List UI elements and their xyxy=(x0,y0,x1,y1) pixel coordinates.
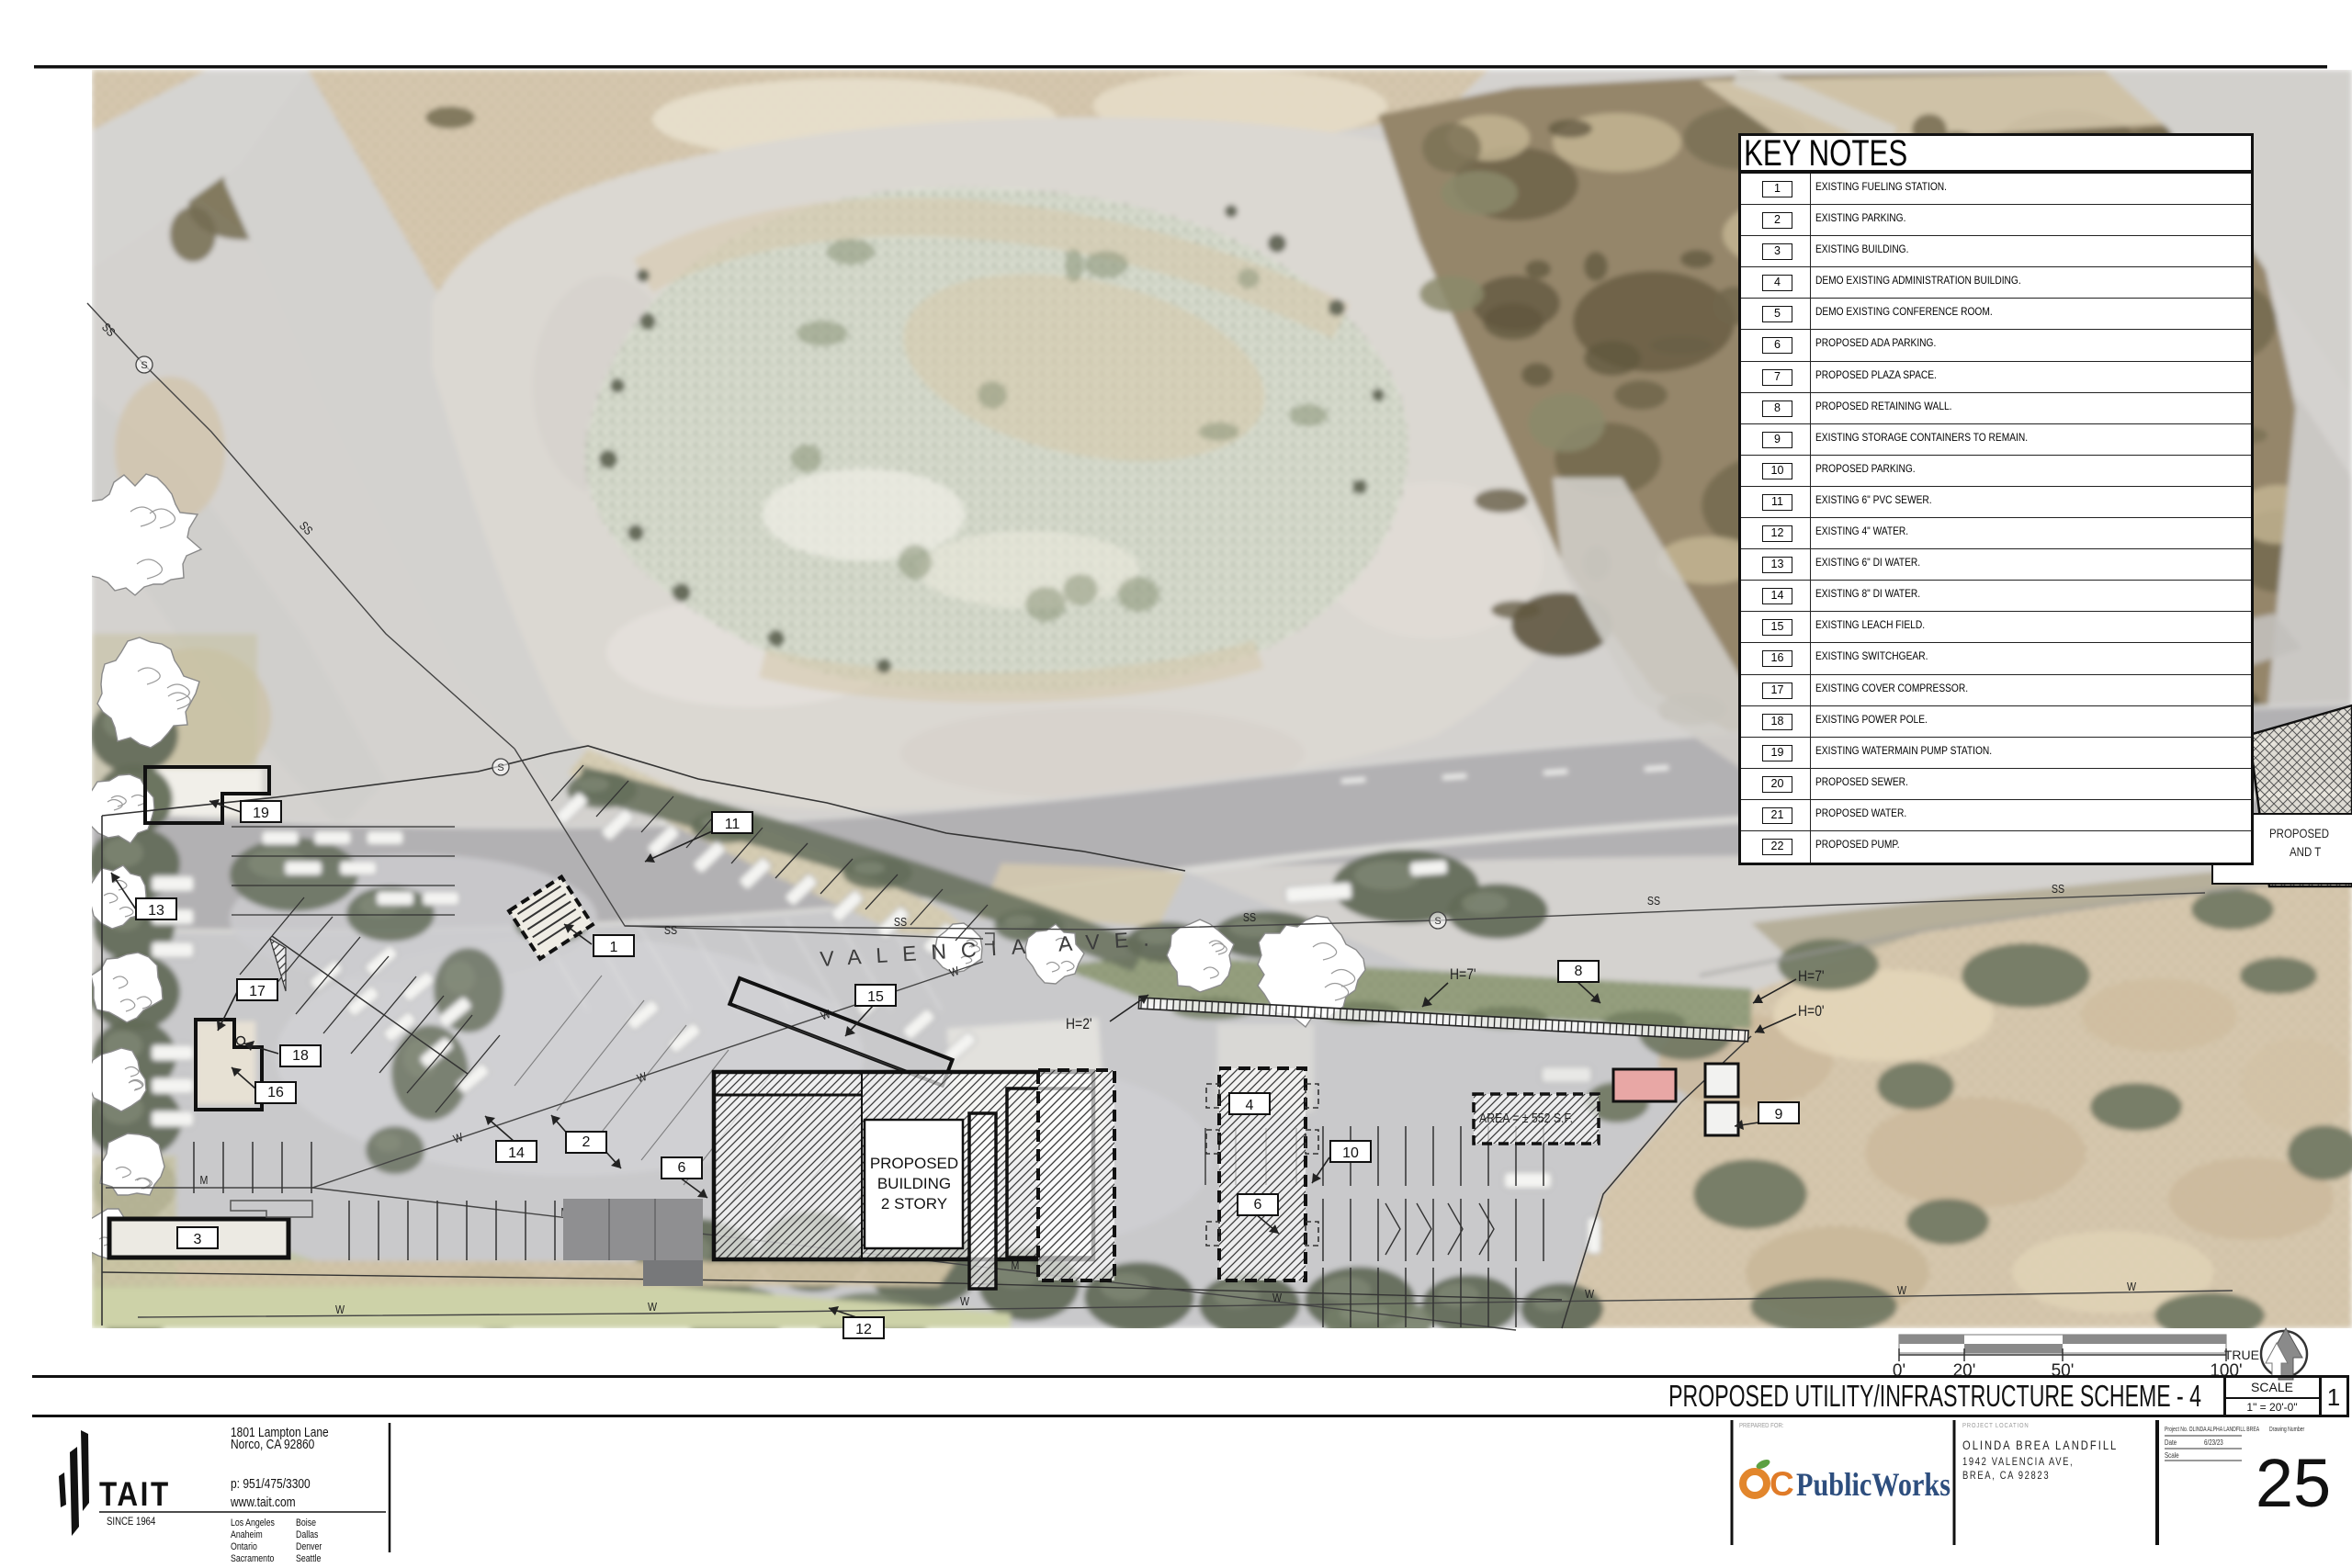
svg-text:S: S xyxy=(1434,916,1441,927)
svg-text:W: W xyxy=(1897,1283,1907,1297)
svg-text:Sacramento: Sacramento xyxy=(231,1553,275,1564)
svg-text:1: 1 xyxy=(2327,1383,2340,1411)
svg-text:Ontario: Ontario xyxy=(231,1541,257,1552)
svg-text:12: 12 xyxy=(855,1322,872,1337)
svg-text:PROPOSEDBUILDING2 STORY: PROPOSEDBUILDING2 STORY xyxy=(870,1155,958,1213)
svg-text:8: 8 xyxy=(1575,964,1583,979)
svg-text:Date: Date xyxy=(2165,1438,2177,1447)
svg-text:W: W xyxy=(2127,1280,2137,1293)
svg-text:SS: SS xyxy=(1647,894,1660,908)
svg-text:PROJECT LOCATION: PROJECT LOCATION xyxy=(1962,1422,2029,1429)
svg-text:SS: SS xyxy=(894,915,907,929)
svg-text:Project No. OLINDA ALPHA LAND: Project No. OLINDA ALPHA LANDFILL BREA xyxy=(2165,1426,2260,1433)
svg-text:p: 951/475/3300: p: 951/475/3300 xyxy=(231,1476,311,1492)
svg-text:SS: SS xyxy=(1243,910,1256,924)
svg-text:6: 6 xyxy=(1254,1197,1262,1213)
svg-text:6: 6 xyxy=(678,1160,686,1176)
svg-text:H=7': H=7' xyxy=(1450,966,1476,984)
svg-text:25: 25 xyxy=(2256,1445,2331,1521)
svg-text:C: C xyxy=(1770,1465,1794,1503)
svg-text:SS: SS xyxy=(664,923,677,937)
svg-text:1: 1 xyxy=(610,940,618,955)
svg-text:M: M xyxy=(200,1173,209,1187)
svg-text:H=2': H=2' xyxy=(1066,1016,1092,1033)
svg-text:Scale: Scale xyxy=(2165,1451,2179,1460)
svg-text:10: 10 xyxy=(1342,1145,1359,1161)
svg-text:PublicWorks: PublicWorks xyxy=(1796,1467,1951,1504)
svg-text:14: 14 xyxy=(508,1145,525,1161)
svg-text:15: 15 xyxy=(867,989,884,1005)
svg-text:W: W xyxy=(335,1303,345,1316)
svg-text:18: 18 xyxy=(292,1048,309,1064)
svg-text:SINCE 1964: SINCE 1964 xyxy=(107,1516,155,1528)
svg-text:AND T: AND T xyxy=(2290,844,2321,859)
svg-text:Boise: Boise xyxy=(296,1517,316,1529)
svg-text:H=0': H=0' xyxy=(1798,1003,1825,1021)
svg-text:PREPARED FOR:: PREPARED FOR: xyxy=(1739,1422,1784,1429)
svg-text:H=7': H=7' xyxy=(1798,968,1825,986)
svg-text:13: 13 xyxy=(148,903,164,919)
svg-text:PROPOSED: PROPOSED xyxy=(2269,826,2329,840)
svg-text:AREA = ± 552 S.F.: AREA = ± 552 S.F. xyxy=(1479,1111,1573,1125)
svg-text:Denver: Denver xyxy=(296,1541,322,1552)
svg-text:W: W xyxy=(960,1294,970,1308)
svg-text:Seattle: Seattle xyxy=(296,1553,322,1564)
svg-text:OLINDA BREA LANDFILL: OLINDA BREA LANDFILL xyxy=(1962,1438,2118,1452)
svg-text:W: W xyxy=(1585,1287,1595,1301)
svg-text:W: W xyxy=(1272,1291,1283,1304)
svg-text:Anaheim: Anaheim xyxy=(231,1529,263,1540)
svg-text:TAIT: TAIT xyxy=(99,1476,171,1514)
svg-text:BREA, CA 92823: BREA, CA 92823 xyxy=(1962,1470,2050,1482)
svg-text:19: 19 xyxy=(253,806,269,821)
svg-text:1942 VALENCIA AVE,: 1942 VALENCIA AVE, xyxy=(1962,1456,2074,1468)
svg-text:TRUE: TRUE xyxy=(2224,1348,2259,1362)
svg-text:SS: SS xyxy=(2052,882,2064,896)
svg-text:11: 11 xyxy=(725,817,741,832)
svg-text:16: 16 xyxy=(267,1085,284,1100)
svg-text:S: S xyxy=(497,762,503,773)
svg-text:9: 9 xyxy=(1775,1107,1783,1122)
svg-text:SCALE: SCALE xyxy=(2251,1380,2293,1394)
svg-text:Drawing Number: Drawing Number xyxy=(2269,1426,2304,1433)
svg-text:2: 2 xyxy=(582,1134,591,1150)
svg-text:17: 17 xyxy=(249,984,266,999)
svg-text:3: 3 xyxy=(194,1232,202,1247)
svg-text:PROPOSED UTILITY/INFRASTRUCTUR: PROPOSED UTILITY/INFRASTRUCTURE SCHEME -… xyxy=(1668,1380,2201,1414)
svg-text:www.tait.com: www.tait.com xyxy=(230,1495,296,1510)
svg-text:1" = 20'-0": 1" = 20'-0" xyxy=(2246,1401,2297,1414)
svg-text:6/23/23: 6/23/23 xyxy=(2204,1438,2223,1447)
svg-text:4: 4 xyxy=(1246,1098,1254,1113)
svg-text:W: W xyxy=(648,1300,658,1314)
svg-text:Norco, CA 92860: Norco, CA 92860 xyxy=(231,1437,315,1452)
svg-text:S: S xyxy=(141,360,147,371)
svg-text:Los Angeles: Los Angeles xyxy=(231,1517,275,1529)
svg-text:Dallas: Dallas xyxy=(296,1529,318,1540)
